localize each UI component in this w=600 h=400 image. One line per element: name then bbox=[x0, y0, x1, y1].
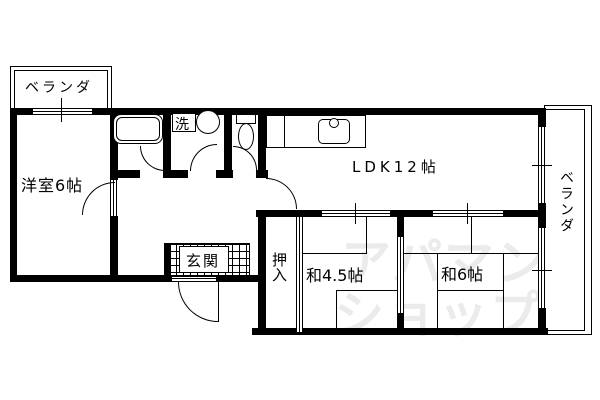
hall-ldk-door-arc bbox=[266, 178, 297, 209]
wall bbox=[256, 210, 322, 217]
tatami-line bbox=[336, 290, 397, 291]
wall bbox=[538, 108, 546, 127]
wall bbox=[258, 210, 266, 332]
sliding-door-japanese6 bbox=[433, 210, 503, 217]
tatami-line bbox=[336, 290, 337, 332]
room-label-balcony-right: ベランダ bbox=[556, 170, 576, 250]
room-label-entrance: 玄関 bbox=[186, 250, 220, 271]
door-center-tick bbox=[61, 98, 62, 122]
washing-machine-icon bbox=[196, 110, 220, 134]
entrance-door-arc bbox=[178, 282, 218, 322]
room-label-closet: 押入 bbox=[269, 252, 290, 304]
kitchen-counter bbox=[266, 115, 366, 148]
room-label-ldk: LDK12帖 bbox=[352, 156, 440, 177]
floor-plan: アパマン ショップ ベランダ ベランダ bbox=[0, 0, 600, 400]
tatami-line bbox=[503, 253, 504, 332]
bathtub-icon-inner bbox=[116, 117, 160, 141]
wall bbox=[110, 216, 118, 275]
wall bbox=[110, 170, 140, 178]
wall bbox=[10, 108, 33, 115]
window-center-tick bbox=[532, 270, 552, 271]
sliding-door-balcony bbox=[33, 108, 92, 115]
door-center-tick bbox=[467, 203, 468, 224]
wall bbox=[92, 108, 545, 115]
room-label-laundry: 洗 bbox=[175, 114, 189, 134]
tatami-line bbox=[366, 217, 367, 253]
window-japanese6 bbox=[538, 228, 546, 308]
entrance-door-leaf bbox=[218, 282, 219, 322]
door-center-tick bbox=[355, 203, 356, 224]
wall bbox=[397, 217, 404, 237]
wall bbox=[258, 108, 266, 178]
wall bbox=[390, 210, 433, 217]
bath-door-arc bbox=[140, 146, 165, 171]
wall bbox=[216, 170, 233, 178]
wall bbox=[538, 308, 546, 332]
faucet-icon bbox=[329, 118, 339, 128]
tatami-line bbox=[437, 290, 504, 291]
fusuma-between-tatami bbox=[397, 237, 404, 313]
room-label-western: 洋室6帖 bbox=[21, 172, 83, 196]
room-label-japanese45: 和4.5帖 bbox=[306, 262, 363, 286]
western-room-door-arc bbox=[82, 182, 115, 215]
room-label-balcony-top: ベランダ bbox=[25, 77, 93, 97]
wall bbox=[10, 275, 172, 282]
wall bbox=[10, 115, 17, 282]
closet-sliding-front bbox=[296, 217, 303, 332]
kitchen-counter-divider bbox=[284, 115, 285, 148]
wall bbox=[538, 203, 546, 228]
wall bbox=[397, 313, 404, 332]
tatami-line bbox=[471, 217, 472, 254]
washroom-door-arc bbox=[190, 144, 217, 171]
window-center-tick bbox=[532, 165, 552, 166]
sliding-door-japanese45 bbox=[322, 210, 390, 217]
tatami-line bbox=[303, 253, 367, 254]
wall bbox=[166, 170, 188, 178]
tatami-line bbox=[437, 253, 438, 332]
room-label-japanese6: 和6帖 bbox=[441, 261, 483, 285]
wall bbox=[224, 115, 232, 178]
toilet-bowl bbox=[238, 123, 254, 150]
